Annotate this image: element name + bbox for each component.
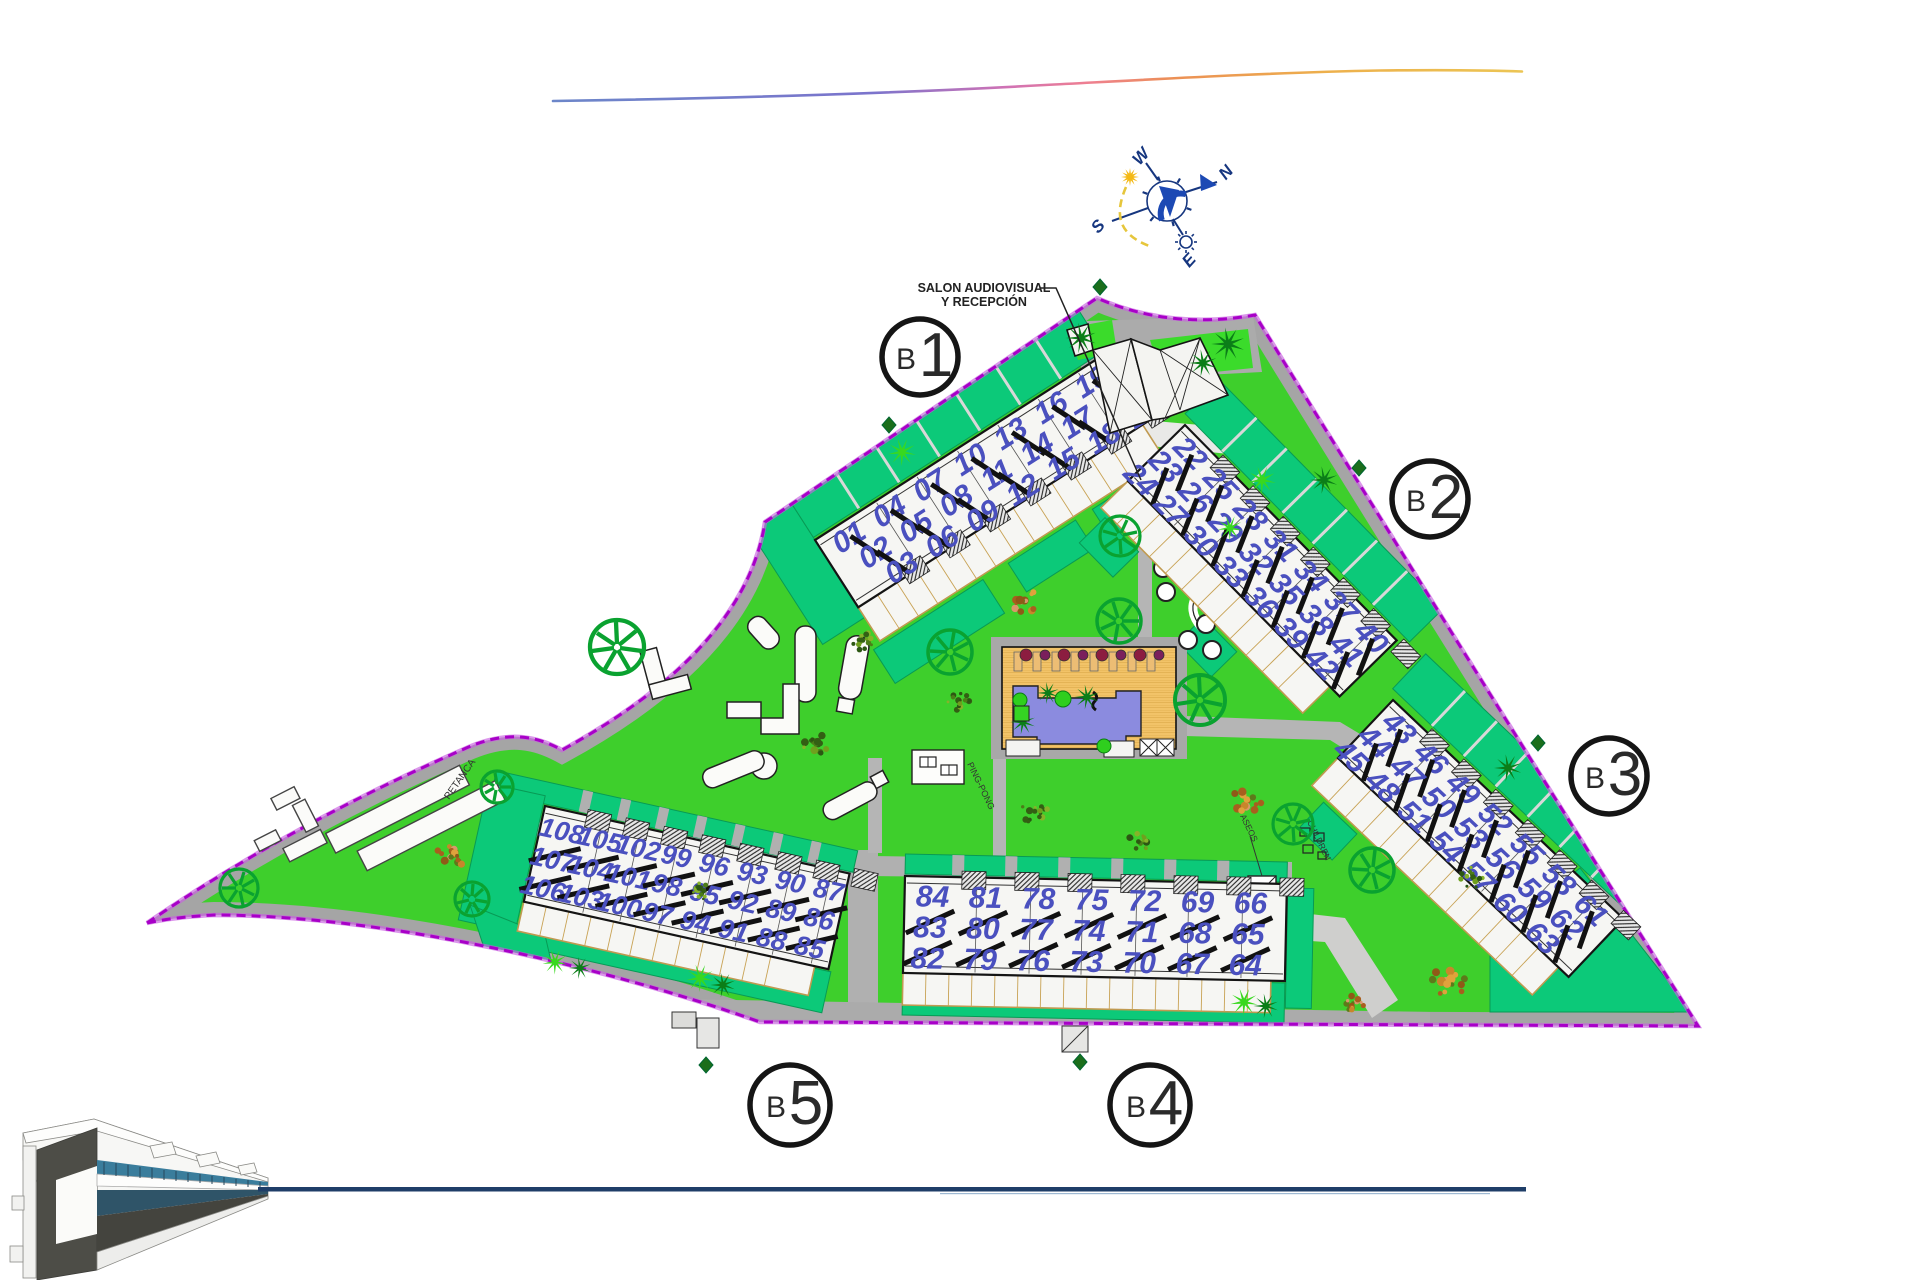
svg-text:3: 3 — [1608, 740, 1642, 809]
svg-text:71: 71 — [1125, 916, 1159, 950]
svg-text:81: 81 — [969, 881, 1003, 915]
svg-text:88: 88 — [754, 921, 790, 957]
svg-text:78: 78 — [1022, 882, 1056, 916]
svg-text:73: 73 — [1069, 945, 1103, 979]
svg-text:2: 2 — [1429, 463, 1463, 532]
svg-text:B: B — [896, 343, 916, 376]
svg-text:94: 94 — [677, 904, 713, 940]
svg-text:SALON AUDIOVISUAL: SALON AUDIOVISUAL — [918, 281, 1051, 295]
svg-text:B: B — [766, 1091, 786, 1124]
svg-text:80: 80 — [966, 912, 1000, 946]
svg-text:77: 77 — [1019, 913, 1054, 947]
svg-text:70: 70 — [1122, 947, 1156, 981]
svg-text:79: 79 — [963, 943, 997, 977]
svg-text:64: 64 — [1228, 949, 1262, 983]
svg-text:5: 5 — [789, 1069, 823, 1138]
svg-text:67: 67 — [1175, 948, 1210, 982]
svg-text:74: 74 — [1072, 915, 1106, 949]
svg-text:65: 65 — [1231, 918, 1266, 952]
svg-text:82: 82 — [910, 942, 944, 976]
svg-text:69: 69 — [1180, 886, 1214, 920]
svg-text:91: 91 — [716, 913, 752, 949]
svg-text:66: 66 — [1233, 887, 1267, 921]
svg-text:B: B — [1585, 762, 1605, 795]
svg-text:4: 4 — [1149, 1069, 1183, 1138]
svg-text:Y RECEPCIÓN: Y RECEPCIÓN — [941, 294, 1027, 309]
svg-text:72: 72 — [1127, 885, 1161, 919]
svg-text:B: B — [1126, 1091, 1146, 1124]
svg-text:1: 1 — [919, 321, 953, 390]
svg-text:76: 76 — [1016, 944, 1050, 978]
svg-text:68: 68 — [1178, 917, 1212, 951]
svg-text:75: 75 — [1075, 884, 1110, 918]
svg-text:83: 83 — [913, 911, 947, 945]
svg-text:B: B — [1406, 485, 1426, 518]
svg-text:84: 84 — [916, 880, 950, 914]
